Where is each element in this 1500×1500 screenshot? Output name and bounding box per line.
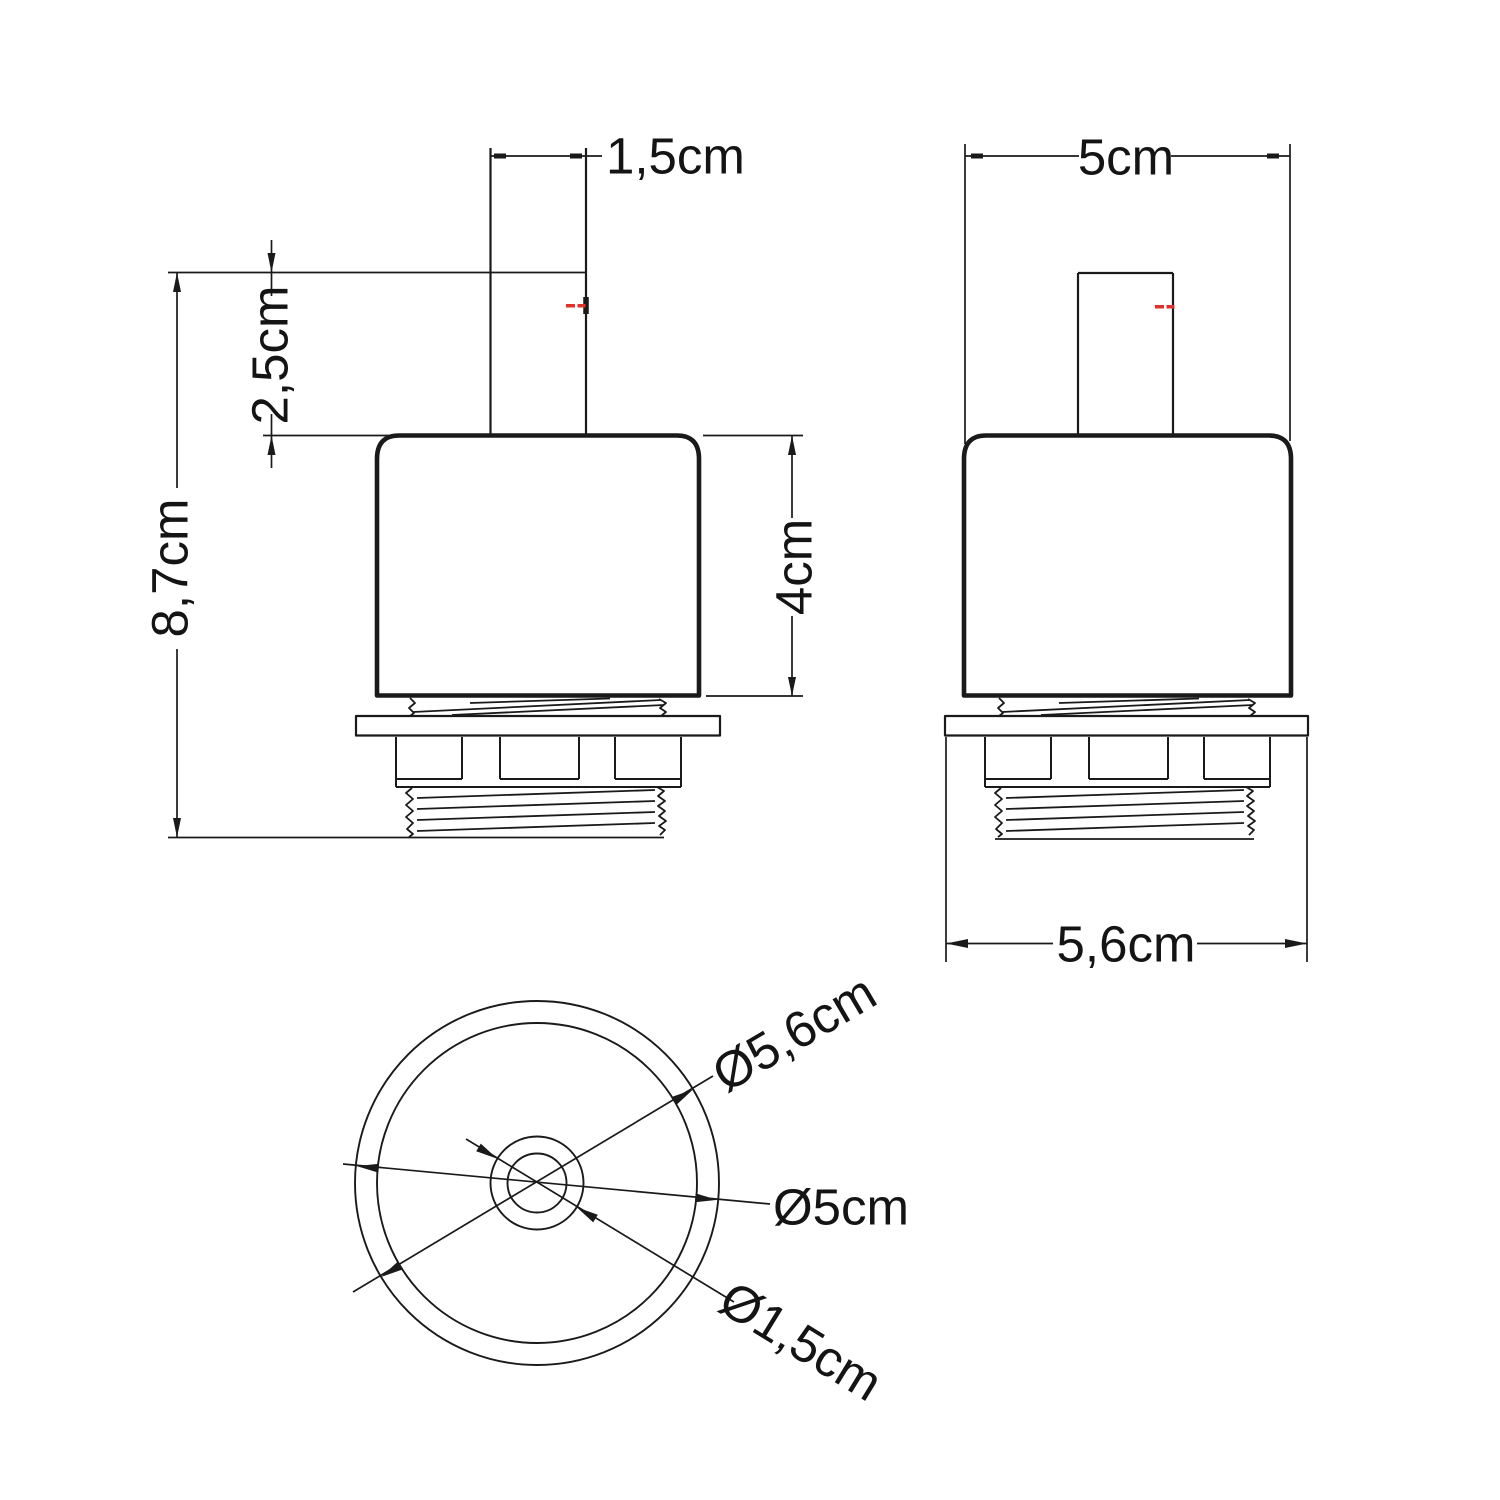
arrow-right-icon: [1285, 939, 1307, 948]
red-centerline-mark: [566, 304, 575, 308]
arrow-down-icon: [173, 818, 181, 838]
arrow-up-icon: [788, 436, 796, 456]
body-width-label: 5cm: [1078, 129, 1174, 186]
front-body-outline: [377, 436, 699, 696]
stem-height-label: 2,5cm: [242, 286, 299, 425]
stem-diameter-label: Ø1,5cm: [710, 1270, 892, 1412]
dim-tick: [570, 154, 582, 159]
arrow-icon: [577, 1207, 598, 1222]
red-centerline-mark: [1167, 305, 1175, 309]
dim-total-height: 8,7cm: [142, 273, 199, 838]
flange-diameter-label: Ø5,6cm: [703, 963, 886, 1103]
dim-flange-diameter: Ø5,6cm: [353, 963, 885, 1292]
lamp-holder-technical-drawing: 1,5cm 2,5cm 8,7cm 4cm: [0, 0, 1500, 1500]
dim-stem-height: 2,5cm: [242, 240, 391, 468]
arrow-icon: [695, 1193, 717, 1202]
side-stem: [1078, 273, 1173, 436]
body-height-label: 4cm: [766, 519, 823, 615]
front-stem: [491, 148, 587, 436]
total-height-label: 8,7cm: [142, 499, 199, 638]
side-threads: [995, 787, 1255, 839]
body-diameter-label: Ø5cm: [773, 1179, 909, 1236]
arrow-down-icon: [788, 677, 796, 696]
side-hex-nut: [985, 737, 1270, 787]
front-hex-nut: [396, 737, 681, 787]
dim-body-height: 4cm: [703, 436, 823, 697]
red-centerline-mark: [1155, 305, 1164, 309]
red-centerline-mark: [578, 304, 586, 308]
arrow-up-icon: [268, 436, 276, 456]
dim-tick: [494, 154, 506, 159]
front-flange: [356, 716, 720, 736]
front-view: 1,5cm 2,5cm 8,7cm 4cm: [142, 128, 823, 838]
front-threads: [406, 787, 666, 837]
stem-width-label: 1,5cm: [606, 128, 745, 185]
arrow-left-icon: [946, 939, 968, 948]
technical-drawing-page: 1,5cm 2,5cm 8,7cm 4cm: [0, 0, 1500, 1500]
dim-flange-width: 5,6cm: [946, 737, 1307, 973]
dim-stem-width: 1,5cm: [491, 128, 745, 185]
side-washer: [998, 698, 1255, 716]
arrow-down-icon: [268, 253, 276, 273]
side-body-outline: [964, 436, 1291, 696]
arrow-icon: [476, 1144, 497, 1159]
top-view: Ø5,6cm Ø5cm Ø1,5cm: [343, 963, 909, 1412]
dim-body-width: 5cm: [965, 129, 1290, 445]
side-view: 5cm: [945, 129, 1308, 973]
flange-width-label: 5,6cm: [1057, 916, 1196, 973]
arrow-up-icon: [173, 273, 181, 293]
dim-tick: [1267, 154, 1279, 159]
front-washer: [409, 698, 666, 716]
side-flange: [945, 716, 1308, 736]
dim-body-diameter: Ø5cm: [343, 1164, 909, 1236]
dim-tick: [971, 154, 983, 159]
